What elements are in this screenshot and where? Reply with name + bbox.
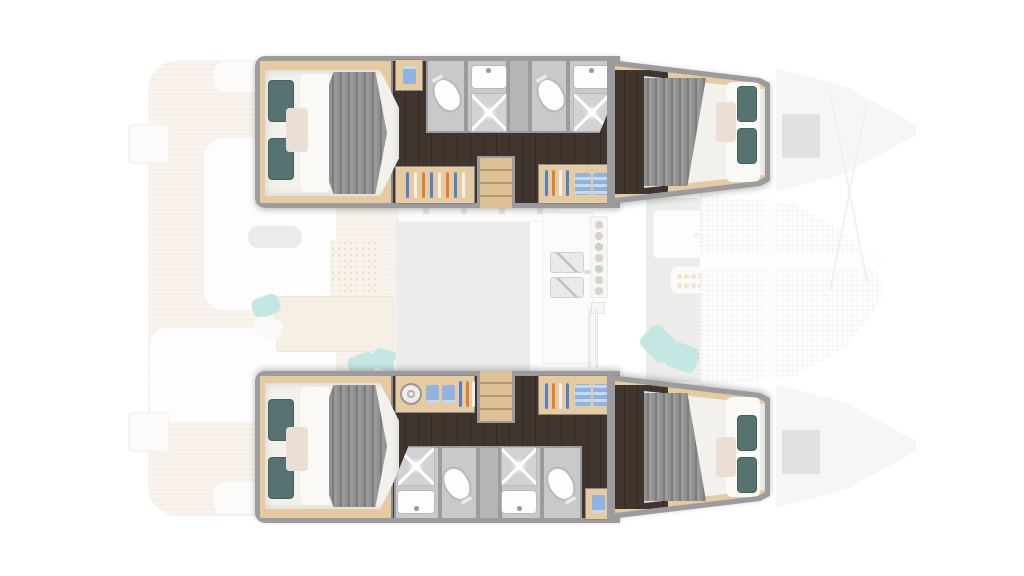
burner bbox=[595, 276, 603, 284]
fwd-shower-room bbox=[394, 446, 440, 520]
deck-hatch bbox=[782, 430, 820, 474]
folded-clothes bbox=[592, 495, 605, 513]
folded-clothes bbox=[426, 385, 439, 403]
seat-button bbox=[684, 274, 689, 279]
hanger bbox=[446, 172, 449, 198]
technical-space bbox=[508, 59, 530, 133]
aft-bed-blanket bbox=[329, 385, 387, 507]
burner bbox=[595, 221, 603, 229]
burner bbox=[595, 243, 603, 251]
sink-bowl bbox=[550, 277, 584, 298]
toilet-fixture bbox=[531, 73, 572, 117]
cabinet-knob bbox=[499, 208, 505, 214]
seat-button bbox=[691, 283, 696, 288]
shower-tray bbox=[501, 447, 537, 486]
washbasin bbox=[397, 490, 435, 514]
burner bbox=[595, 232, 603, 240]
washing-machine bbox=[400, 383, 422, 405]
catamaran-floor-plan bbox=[0, 0, 1024, 576]
hanger bbox=[466, 381, 469, 407]
aft-bed-blanket bbox=[329, 72, 387, 194]
aft-shower-room bbox=[466, 59, 508, 133]
hanger bbox=[430, 172, 433, 198]
burner bbox=[595, 254, 603, 262]
hanger bbox=[552, 170, 555, 196]
aft-shower-room bbox=[500, 446, 542, 520]
folded-clothes bbox=[403, 66, 416, 84]
fwd-bed-pillow bbox=[737, 457, 757, 493]
technical-space bbox=[478, 446, 500, 520]
washbasin bbox=[501, 490, 537, 514]
hanger bbox=[438, 172, 441, 198]
fwd-bed-pillow bbox=[716, 102, 736, 142]
galley-sink bbox=[550, 252, 586, 300]
fwd-cabin-structure bbox=[610, 371, 778, 523]
hanger bbox=[459, 381, 462, 407]
washbasin bbox=[573, 65, 611, 89]
seat-button bbox=[684, 283, 689, 288]
galley-hatch bbox=[591, 302, 605, 314]
hanger bbox=[422, 172, 425, 198]
hanger bbox=[559, 170, 562, 196]
hanger bbox=[472, 381, 475, 407]
bathroom-block bbox=[393, 442, 615, 520]
shower-tray bbox=[471, 93, 507, 132]
washbasin bbox=[471, 65, 507, 89]
burner bbox=[595, 265, 603, 273]
fwd-bed-pillow bbox=[716, 437, 736, 477]
hanger bbox=[559, 383, 562, 409]
hanger bbox=[552, 383, 555, 409]
seat-button bbox=[691, 274, 696, 279]
hanger bbox=[414, 172, 417, 198]
fwd-cabin-floor bbox=[610, 371, 778, 523]
aft-bed-pillow bbox=[286, 427, 308, 471]
fwd-bed-pillow bbox=[737, 128, 757, 164]
hanger bbox=[566, 383, 569, 409]
nav-station-table bbox=[653, 210, 707, 258]
bathroom-block bbox=[393, 59, 615, 137]
woven-mat bbox=[330, 240, 380, 296]
grab-rail bbox=[588, 308, 591, 368]
port-hull-cabins bbox=[255, 56, 778, 208]
aft-toilet-room bbox=[426, 59, 466, 133]
folded-clothes-stack bbox=[575, 384, 591, 406]
fwd-bed-pillow bbox=[737, 86, 757, 122]
shower-tray bbox=[573, 93, 611, 132]
trampoline-strap bbox=[700, 254, 882, 270]
aft-toilet-room bbox=[542, 446, 582, 520]
starboard-hull-cabins bbox=[255, 371, 778, 523]
seat-button bbox=[677, 283, 682, 288]
aft-wardrobe bbox=[395, 375, 475, 413]
companionway-stairs bbox=[477, 371, 515, 423]
linen-closet bbox=[395, 59, 423, 91]
hanger bbox=[454, 172, 457, 198]
cockpit-bench bbox=[248, 226, 302, 248]
aft-bed-pillow bbox=[286, 108, 308, 152]
stove bbox=[590, 216, 608, 298]
swim-platform bbox=[128, 412, 170, 452]
toilet-fixture bbox=[541, 462, 582, 506]
sink-bowl bbox=[550, 252, 584, 273]
hanger bbox=[462, 172, 465, 198]
folded-clothes bbox=[442, 385, 455, 403]
fwd-cabin-floor bbox=[610, 56, 778, 208]
companionway-stairs bbox=[477, 156, 515, 208]
deck-hatch bbox=[782, 114, 820, 158]
fwd-cabin-structure bbox=[610, 56, 778, 208]
fwd-toilet-room bbox=[440, 446, 478, 520]
salon-floor bbox=[396, 218, 530, 380]
swim-platform bbox=[128, 124, 170, 164]
hanger bbox=[566, 170, 569, 196]
cockpit-table bbox=[276, 296, 394, 352]
aft-wardrobe bbox=[395, 166, 475, 204]
hanger bbox=[545, 383, 548, 409]
hanger bbox=[406, 172, 409, 198]
seat-button bbox=[677, 274, 682, 279]
fwd-toilet-room bbox=[530, 59, 568, 133]
folded-clothes-stack bbox=[575, 173, 591, 195]
fwd-bed-pillow bbox=[737, 415, 757, 451]
hanger bbox=[545, 170, 548, 196]
shower-tray bbox=[397, 447, 435, 486]
burner bbox=[595, 287, 603, 295]
bow-crossbeam bbox=[766, 198, 775, 382]
toilet-fixture bbox=[437, 462, 478, 506]
cabinet-knob bbox=[423, 208, 429, 214]
cabinet-knob bbox=[461, 208, 467, 214]
toilet-fixture bbox=[427, 73, 468, 117]
grab-rail bbox=[595, 308, 598, 368]
